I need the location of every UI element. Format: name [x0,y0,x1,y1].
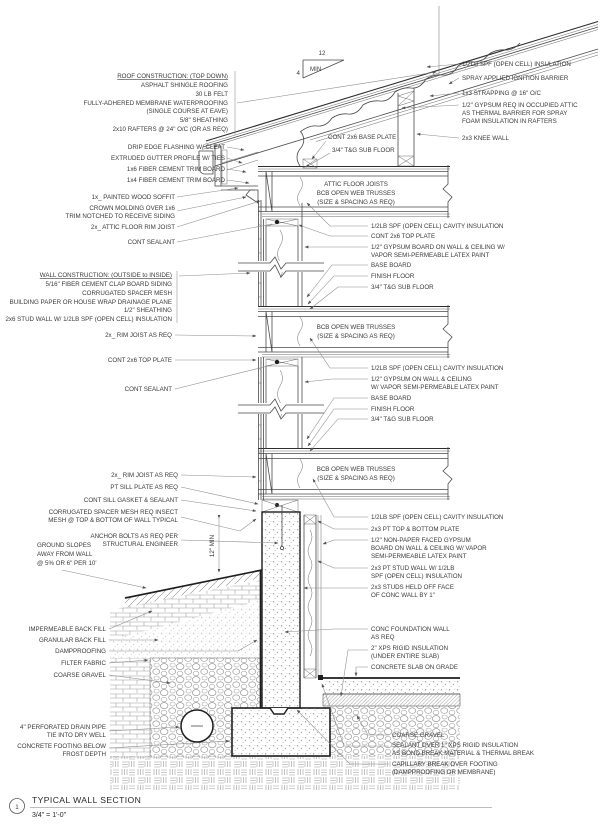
label-baseboard-1: BASE BOARD [371,262,412,269]
label-ground-2: AWAY FROM WALL [37,551,93,558]
label-trusses-2a: BCB OPEN WEB TRUSSES [317,324,396,331]
label-spacer-mesh-1: CORRUGATED SPACER MESH REQ INSECT [49,509,179,516]
label-finish-floor-1: FINISH FLOOR [371,273,415,280]
label-wall-header: WALL CONSTRUCTION: (OUTSIDE to INSIDE) [40,272,172,279]
label-footing-1: CONCRETE FOOTING BELOW [17,743,106,750]
label-wall-4: 1/2" SHEATHING [124,307,172,314]
knee-wall-top-plate [398,91,414,106]
label-trim-1x6: 1x6 FIBER CEMENT TRIM BOARD [127,166,226,173]
label-crown-2: TRIM NOTCHED TO RECEIVE SIDING [66,213,176,220]
label-finish-floor-2: FINISH FLOOR [371,406,415,413]
crown-molding [246,190,258,203]
label-cavity-1: 1/2LB SPF (OPEN CELL) CAVITY INSULATION [371,223,503,230]
detail-number: 1 [15,804,19,811]
label-base-plate: CONT 2x6 BASE PLATE [328,134,396,141]
label-sill-plate: PT SILL PLATE AS REQ [110,484,178,491]
label-sealant-xps-1: SEALANT OVER 1" XPS RIGID INSULATION [392,742,518,749]
label-sealant-xps-2: AS BOND BREAK MATERIAL & THERMAL BREAK [392,750,535,757]
label-soffit: 1x_ PAINTED WOOD SOFFIT [92,194,176,201]
label-capillary-2: (DAMPPROOFING OR MEMBRANE) [392,769,495,776]
label-roof-6: 2x10 RAFTERS @ 24" O/C (OR AS REQ) [113,126,228,133]
label-gyp-1a: 1/2" GYPSUM BOARD ON WALL & CEILING W/ [371,244,505,251]
label-ground-1: GROUND SLOPES [37,542,91,549]
rim-joist-3 [266,454,272,495]
label-cavity-2: 1/2LB SPF (OPEN CELL) CAVITY INSULATION [371,365,503,372]
label-anchor-2: STRUCTURAL ENGINEER [103,541,179,548]
label-wall-5: 2x6 STUD WALL W/ 1/2LB SPF (OPEN CELL) I… [5,316,172,323]
label-wall-3: BUILDING PAPER OR HOUSE WRAP DRAINAGE PL… [10,299,172,306]
band3-foam [298,459,303,488]
drawing-scale: 3/4" = 1'-0" [32,812,67,819]
label-attic-rim: 2x_ ATTIC FLOOR RIM JOIST [91,224,175,231]
label-filter-fabric: FILTER FABRIC [61,660,106,667]
label-roof-3: FULLY-ADHERED MEMBRANE WATERPROOFING [84,100,229,107]
label-rim-2: 2x_ RIM JOIST AS REQ [105,332,172,339]
label-coarse-gravel-l: COARSE GRAVEL [54,672,107,679]
label-spacer-mesh-2: MESH @ TOP & BOTTOM OF WALL TYPICAL [48,517,178,524]
label-fdn-wall-2: AS REQ [371,634,395,641]
wall-section-drawing: 12 4 MIN [0,0,600,840]
footing-keyway [270,708,288,714]
basement-gypsum [318,515,321,678]
label-anchor-1: ANCHOR BOLTS AS REQ PER [90,533,178,540]
label-gyp-3c: SEMI-PERMEABLE LATEX PAINT [371,553,467,560]
label-xps-1: 2" XPS RIGID INSULATION [371,645,448,652]
concrete-foundation-wall [262,512,300,708]
sealant-dot-2 [275,360,279,364]
label-wall-1: 5/16" FIBER CEMENT CLAP BOARD SIDING [46,281,173,288]
label-attic-joists-2: BCB OPEN WEB TRUSSES [317,190,396,197]
label-drain-1: 4" PERFORATED DRAIN PIPE [20,724,106,731]
label-gyp-attic-1: 1/2" GYPSUM REQ IN OCCUPIED ATTIC [462,102,578,109]
label-crown-1: CROWN MOLDING OVER 1x6 [89,205,175,212]
label-sill-gasket: CONT SILL GASKET & SEALANT [84,497,178,504]
label-strapping: 1x3 STRAPPING @ 16" O/C [462,90,542,97]
label-pt-stud-2: SPF (OPEN CELL) INSULATION [371,573,462,580]
label-rim-3: 2x_ RIM JOIST AS REQ [111,472,178,479]
label-gyp-2a: 1/2" GYPSUM ON WALL & CEILING [371,376,472,383]
felt-line [204,25,598,145]
label-roof-5: 5/8" SHEATHING [180,117,228,124]
label-gyp-2b: W/ VAPOR SEMI-PERMEABLE LATEX PAINT [371,384,499,391]
title-block: 1 TYPICAL WALL SECTION 3/4" = 1'-0" [10,795,493,819]
label-trusses-3b: (SIZE & SPACING AS REQ) [317,475,395,482]
wall-cavity-foam [278,230,283,418]
dimension-12min: 12" MIN [209,518,219,572]
label-top-plate-r1: CONT 2x6 TOP PLATE [371,233,435,240]
concrete-footing [232,708,330,756]
label-knee-wall: 2x3 KNEE WALL [462,135,509,142]
attic-rim-joist [266,172,272,212]
backfill-lower [110,658,150,758]
rim-joist-2 [266,312,272,353]
label-fdn-wall-1: CONC FOUNDATION WALL [371,626,450,633]
label-roof-header: ROOF CONSTRUCTION: (TOP DOWN) [117,73,228,80]
label-trusses-3a: BCB OPEN WEB TRUSSES [317,466,396,473]
label-ignition: SPRAY APPLIED IGNITION BARRIER [462,75,569,82]
pt-stud-wall [304,515,316,678]
label-backfill-imp: IMPERMEABLE BACK FILL [29,626,107,633]
label-spf-roof: 1/2LB SPF (OPEN CELL) INSULATION [462,61,571,68]
label-sealant-2: CONT SEALANT [125,386,173,393]
label-gutter: EXTRUDED GUTTER PROFILE W/ TIES [111,155,225,162]
label-studs-off-2: OF CONC WALL BY 1" [371,592,435,599]
label-coarse-gravel-r: COARSE GRAVEL [392,732,445,739]
label-sealant-1: CONT SEALANT [128,239,176,246]
soffit-lines [221,186,258,190]
attic-floor-band [258,159,452,218]
sealant-dot-1 [275,220,279,224]
label-studs-off-1: 2x3 STUDS HELD OFF FACE [371,584,454,591]
basement-foam [308,530,312,656]
label-roof-2: 30 LB FELT [195,91,228,98]
label-roof-1: ASPHALT SHINGLE ROOFING [141,82,228,89]
label-trusses-2b: (SIZE & SPACING AS REQ) [317,333,395,340]
label-capillary-1: CAPILLARY BREAK OVER FOOTING [392,761,498,768]
label-roof-4: (SINGLE COURSE AT EAVE) [147,108,229,115]
roof-assembly: 12 4 MIN [202,6,598,166]
label-slab: CONCRETE SLAB ON GRADE [371,664,458,671]
label-dampproofing: DAMPPROOFING [55,648,106,655]
drawing-sheet: 12 4 MIN [0,0,600,840]
label-attic-joists-3: (SIZE & SPACING AS REQ) [317,199,395,206]
label-pt-plate: 2x3 PT TOP & BOTTOM PLATE [371,526,459,533]
label-ground-3: @ 5% OR 6" PER 10' [37,560,97,567]
label-attic-joists-1: ATTIC FLOOR JOISTS [324,181,388,188]
label-gyp-3a: 1/2" NON-PAPER FACED GYPSUM [371,537,471,544]
slope-rise: 4 [297,70,301,77]
drawing-title: TYPICAL WALL SECTION [32,795,141,805]
slab-edge-sealant [318,675,323,680]
label-baseboard-2: BASE BOARD [371,395,412,402]
band1-break [443,165,452,218]
label-drip-edge: DRIP EDGE FLASHING W/ CLEAT [128,144,225,151]
label-xps-2: (UNDER ENTIRE SLAB) [371,653,439,660]
label-drain-2: TIE INTO DRY WELL [47,732,107,739]
slope-marker: 12 4 MIN [297,50,344,78]
label-backfill-gran: GRANULAR BACK FILL [39,637,107,644]
label-gyp-attic-2: AS THERMAL BARRIER FOR SPRAY [462,110,567,117]
label-footing-2: FROST DEPTH [62,751,106,758]
slope-run: 12 [319,50,326,57]
label-cavity-3: 1/2LB SPF (OPEN CELL) CAVITY INSULATION [371,514,503,521]
sheathing-top [203,27,598,147]
band2-break [443,305,452,358]
band3-break [443,447,452,500]
band2-foam [298,317,303,346]
xps-under-slab [323,694,460,706]
label-gyp-attic-3: FOAM INSULATION IN RAFTERS [462,118,557,125]
dim-12min-text: 12" MIN [209,535,216,557]
label-gyp-1b: VAPOR SEMI-PERMEABLE LATEX PAINT [371,252,489,259]
label-subfloor-attic: 3/4" T&G SUB FLOOR [332,147,395,154]
label-subfloor-2: 3/4" T&G SUB FLOOR [371,416,434,423]
label-wall-2: CORRUGATED SPACER MESH [82,290,172,297]
label-pt-stud-1: 2x3 PT STUD WALL W/ 1/2LB [371,565,454,572]
knee-wall [398,88,414,166]
band1-foam [298,177,303,206]
label-trim-1x4: 1x4 FIBER CEMENT TRIM BOARD [127,177,226,184]
label-gyp-3b: BOARD ON WALL & CEILING W/ VAPOR [371,545,487,552]
label-subfloor-1: 3/4" T&G SUB FLOOR [371,284,434,291]
slope-note: MIN [310,66,321,73]
label-top-plate-2: CONT 2x6 TOP PLATE [108,357,172,364]
exterior-wall [238,200,324,507]
